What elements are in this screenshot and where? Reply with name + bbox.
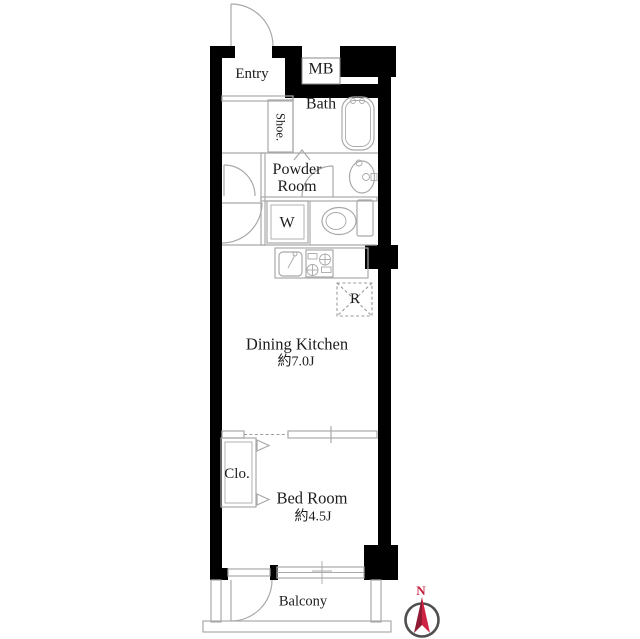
entry-door-swing: [231, 4, 273, 46]
toilet: [322, 200, 373, 236]
toilet-bowl-inner: [326, 213, 346, 230]
bathtub-inner: [346, 101, 371, 147]
washbasin-drain: [363, 174, 370, 181]
bed-room-size: 約4.5J: [295, 511, 332, 526]
balcony-door-sill: [228, 569, 270, 576]
door-direction-marker: [257, 440, 269, 451]
wall-left: [210, 46, 222, 580]
wall-pillar-bottom-right: [364, 545, 398, 580]
powder-door-swing: [224, 165, 255, 196]
powder-room-label: Powder Room: [261, 162, 333, 196]
toilet-tank: [357, 200, 373, 236]
wall-top-mid: [272, 46, 302, 58]
balcony-rail-right: [371, 580, 381, 622]
dk-bedroom-partition: [222, 426, 377, 443]
stove-grill: [308, 254, 317, 260]
compass: [406, 597, 439, 637]
bed-room-label: Bed Room: [276, 489, 347, 506]
partition-jamb: [222, 431, 244, 438]
balcony-rail-left: [211, 580, 221, 622]
refrigerator-label: R: [350, 292, 360, 308]
wall-pillar-kitchen: [365, 245, 398, 269]
entry-label: Entry: [235, 67, 268, 83]
balcony-label: Balcony: [279, 594, 327, 609]
wall-bath-top: [285, 84, 391, 98]
dining-kitchen-label: Dining Kitchen: [246, 335, 348, 352]
meter-box-label: MB: [309, 62, 334, 79]
wall-top-left: [210, 46, 235, 58]
kitchen-counter: [275, 248, 368, 278]
compass-north-label: N: [416, 584, 425, 598]
floor-plan-canvas: Entry MB Bath Shoe. Powder Room W R Dini…: [0, 0, 640, 639]
dining-kitchen-size: 約7.0J: [278, 356, 315, 371]
door-direction-marker: [257, 494, 269, 505]
shoe-closet-label: Shoe.: [273, 113, 286, 141]
bath-label: Bath: [306, 97, 336, 114]
hall-doors: [222, 165, 262, 243]
washing-machine-label: W: [279, 216, 294, 233]
wall-top-right-block: [340, 46, 396, 77]
balcony-openings: [228, 561, 364, 584]
washbasin: [350, 160, 378, 193]
stove-grill: [322, 267, 332, 273]
balcony-slab: [203, 621, 391, 632]
hall-door-swing: [222, 203, 262, 243]
closet-label: Clo.: [224, 467, 249, 483]
sink-faucet-icon: [288, 255, 295, 268]
toilet-bowl: [322, 208, 356, 235]
sliding-door-panel: [288, 431, 377, 438]
bath-folding-door: [294, 150, 310, 160]
entry-door-arc: [231, 4, 273, 46]
balcony-door-swing: [231, 580, 272, 621]
bathtub: [342, 97, 374, 150]
wall-right: [378, 77, 391, 580]
wall-left-foot: [210, 568, 228, 580]
